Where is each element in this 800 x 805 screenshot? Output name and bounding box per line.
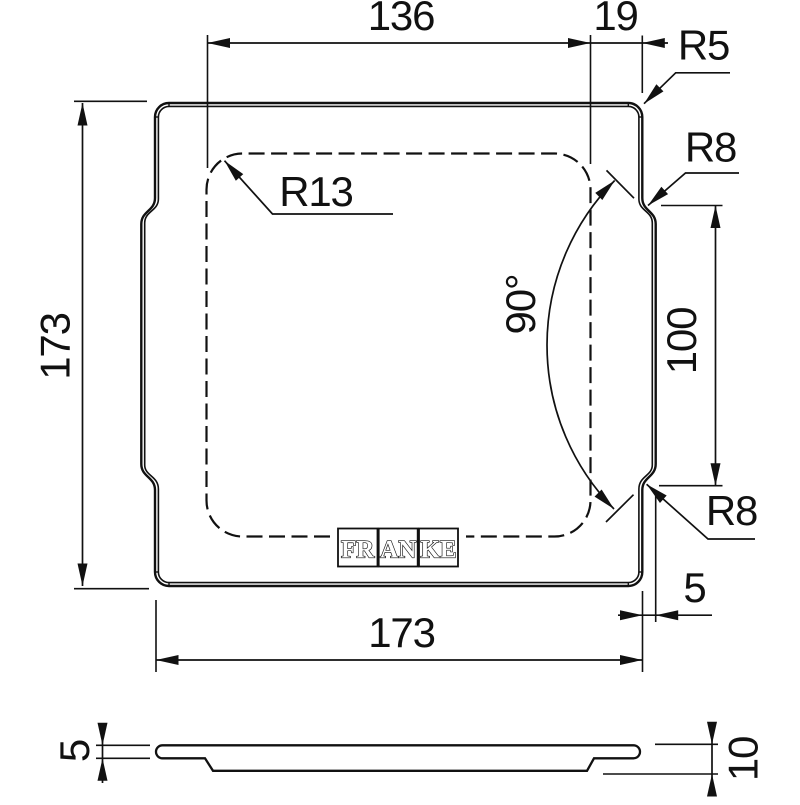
svg-text:10: 10 (720, 737, 767, 781)
svg-text:R5: R5 (678, 22, 729, 69)
svg-text:AN: AN (380, 537, 416, 564)
svg-text:R8: R8 (685, 124, 736, 171)
svg-text:136: 136 (368, 0, 434, 39)
svg-text:KE: KE (420, 537, 456, 564)
svg-text:R13: R13 (279, 168, 352, 215)
svg-text:5: 5 (683, 564, 705, 611)
svg-text:173: 173 (368, 609, 434, 656)
svg-text:173: 173 (32, 313, 79, 379)
svg-text:FR: FR (341, 537, 375, 564)
svg-text:100: 100 (658, 308, 705, 374)
svg-text:R8: R8 (706, 487, 757, 534)
svg-text:90°: 90° (497, 275, 544, 335)
svg-text:5: 5 (51, 740, 98, 762)
svg-text:19: 19 (593, 0, 637, 39)
